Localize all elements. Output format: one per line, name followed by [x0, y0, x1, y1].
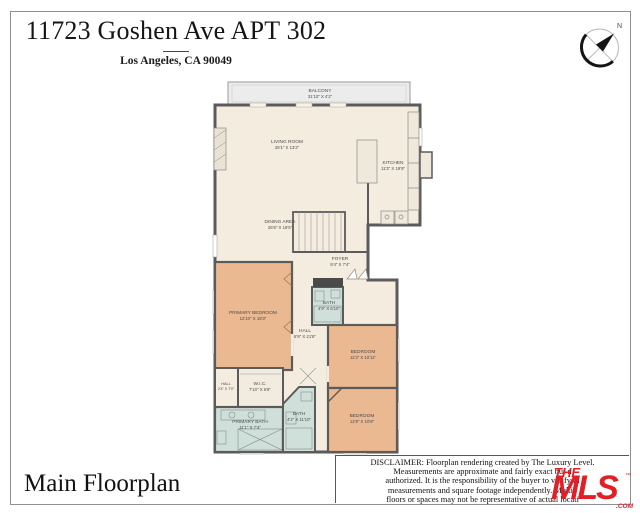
themls-logo-com: .COM	[616, 503, 633, 510]
themls-logo-tm: ™	[625, 473, 631, 479]
label-kitchen-dims: 11'3" X 19'9"	[381, 166, 405, 171]
label-hall-small-name: HALL	[221, 382, 231, 386]
label-bath-upper-dims: 4'9" X 6'10"	[318, 306, 340, 311]
label-bedroom-mid-dims: 11'3" X 10'11"	[350, 355, 377, 360]
label-foyer-dims: 9'4" X 7'4"	[330, 262, 350, 267]
floorplan-page: 11723 Goshen Ave APT 302 Los Angeles, CA…	[0, 0, 640, 513]
label-primary-bedroom-dims: 12'10" X 18'3"	[240, 316, 267, 321]
label-bath-mid-dims: 4'2" X 11'10"	[287, 417, 311, 422]
label-wic-dims: 7'10" X 6'8"	[249, 387, 271, 392]
label-hall-small-dims: 2'4" X 7'0"	[218, 387, 235, 391]
kitchen-bump-out	[420, 152, 432, 178]
themls-logo: THE MLS ™ .COM	[551, 465, 635, 511]
balcony-door-openings	[250, 103, 346, 107]
label-dining-area-dims: 26'6" X 18'5"	[268, 225, 293, 230]
floorplan-caption: Main Floorplan	[24, 470, 180, 498]
label-living-room-dims: 25'1" X 13'2"	[275, 145, 300, 150]
label-balcony-dims: 31'10" X 4'2"	[308, 94, 333, 99]
fireplace-hatch	[214, 128, 226, 170]
floorplan-drawing: BALCONY 31'10" X 4'2" LIVING ROOM 25'1" …	[0, 0, 640, 513]
label-bedroom-lower-dims: 12'8" X 10'8"	[350, 419, 375, 424]
stairs	[293, 212, 345, 252]
label-hall-dims: 6'9" X 21'8"	[294, 334, 316, 339]
themls-logo-mls: MLS	[551, 471, 617, 505]
label-primary-bath-dims: 11'1" X 7'4"	[239, 425, 261, 430]
